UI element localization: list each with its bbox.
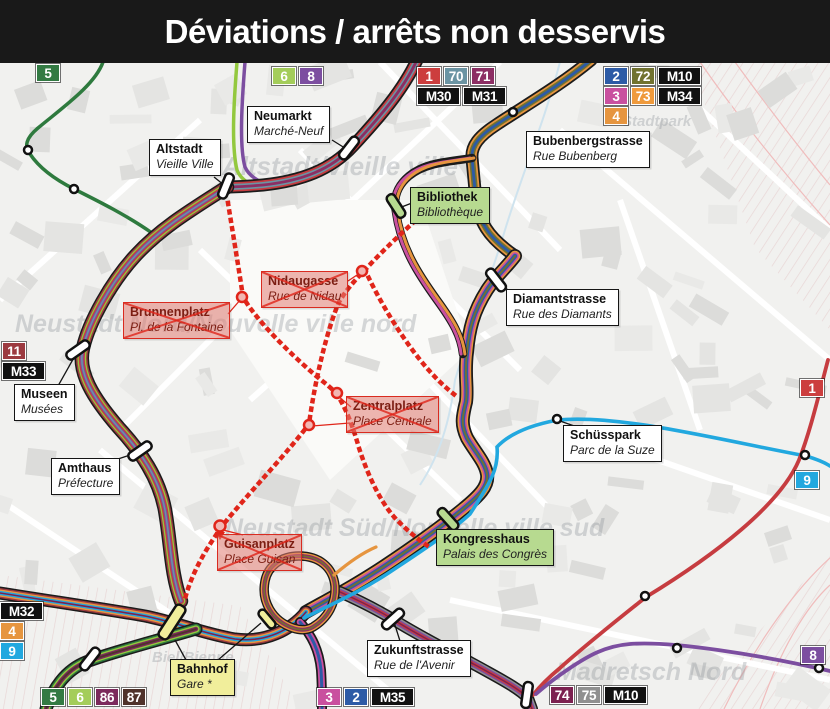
- map-canvas: Altstadt/Vieille villeStadtparkNeustadt …: [0, 0, 830, 709]
- stop-marker-white: [521, 682, 534, 709]
- stop-dot: [815, 664, 823, 672]
- stop-dot: [641, 592, 649, 600]
- title-bar: Déviations / arrêts non desservis: [0, 0, 830, 63]
- building: [24, 560, 39, 585]
- building: [499, 570, 517, 588]
- building: [266, 65, 286, 96]
- closed-stop-dot: [304, 420, 314, 430]
- building: [580, 226, 622, 258]
- building: [683, 366, 718, 379]
- stop-dot: [24, 146, 32, 154]
- stop-dot: [801, 451, 809, 459]
- deviation-map-poster: Altstadt/Vieille villeStadtparkNeustadt …: [0, 0, 830, 709]
- building: [708, 205, 737, 224]
- page-title: Déviations / arrêts non desservis: [165, 13, 666, 51]
- stop-dot: [673, 644, 681, 652]
- wm-stadtpark: Stadtpark: [622, 113, 692, 130]
- building: [632, 64, 670, 78]
- building: [110, 114, 152, 123]
- stop-dot: [553, 415, 561, 423]
- building: [182, 137, 215, 161]
- wm-neustadt-nord: Neustadt Nord/Nouvelle ville nord: [15, 310, 417, 338]
- stop-dot: [509, 108, 517, 116]
- closed-stop-dot: [332, 388, 342, 398]
- wm-madretsch-nord: Madretsch Nord: [556, 658, 747, 686]
- building: [614, 325, 652, 351]
- building: [25, 448, 57, 478]
- building: [692, 383, 731, 413]
- building: [546, 545, 568, 573]
- closed-stop-dot: [237, 292, 247, 302]
- closed-stop-dot: [357, 266, 367, 276]
- building: [43, 221, 84, 254]
- stop-dot: [70, 185, 78, 193]
- building: [699, 343, 715, 365]
- building: [507, 397, 539, 423]
